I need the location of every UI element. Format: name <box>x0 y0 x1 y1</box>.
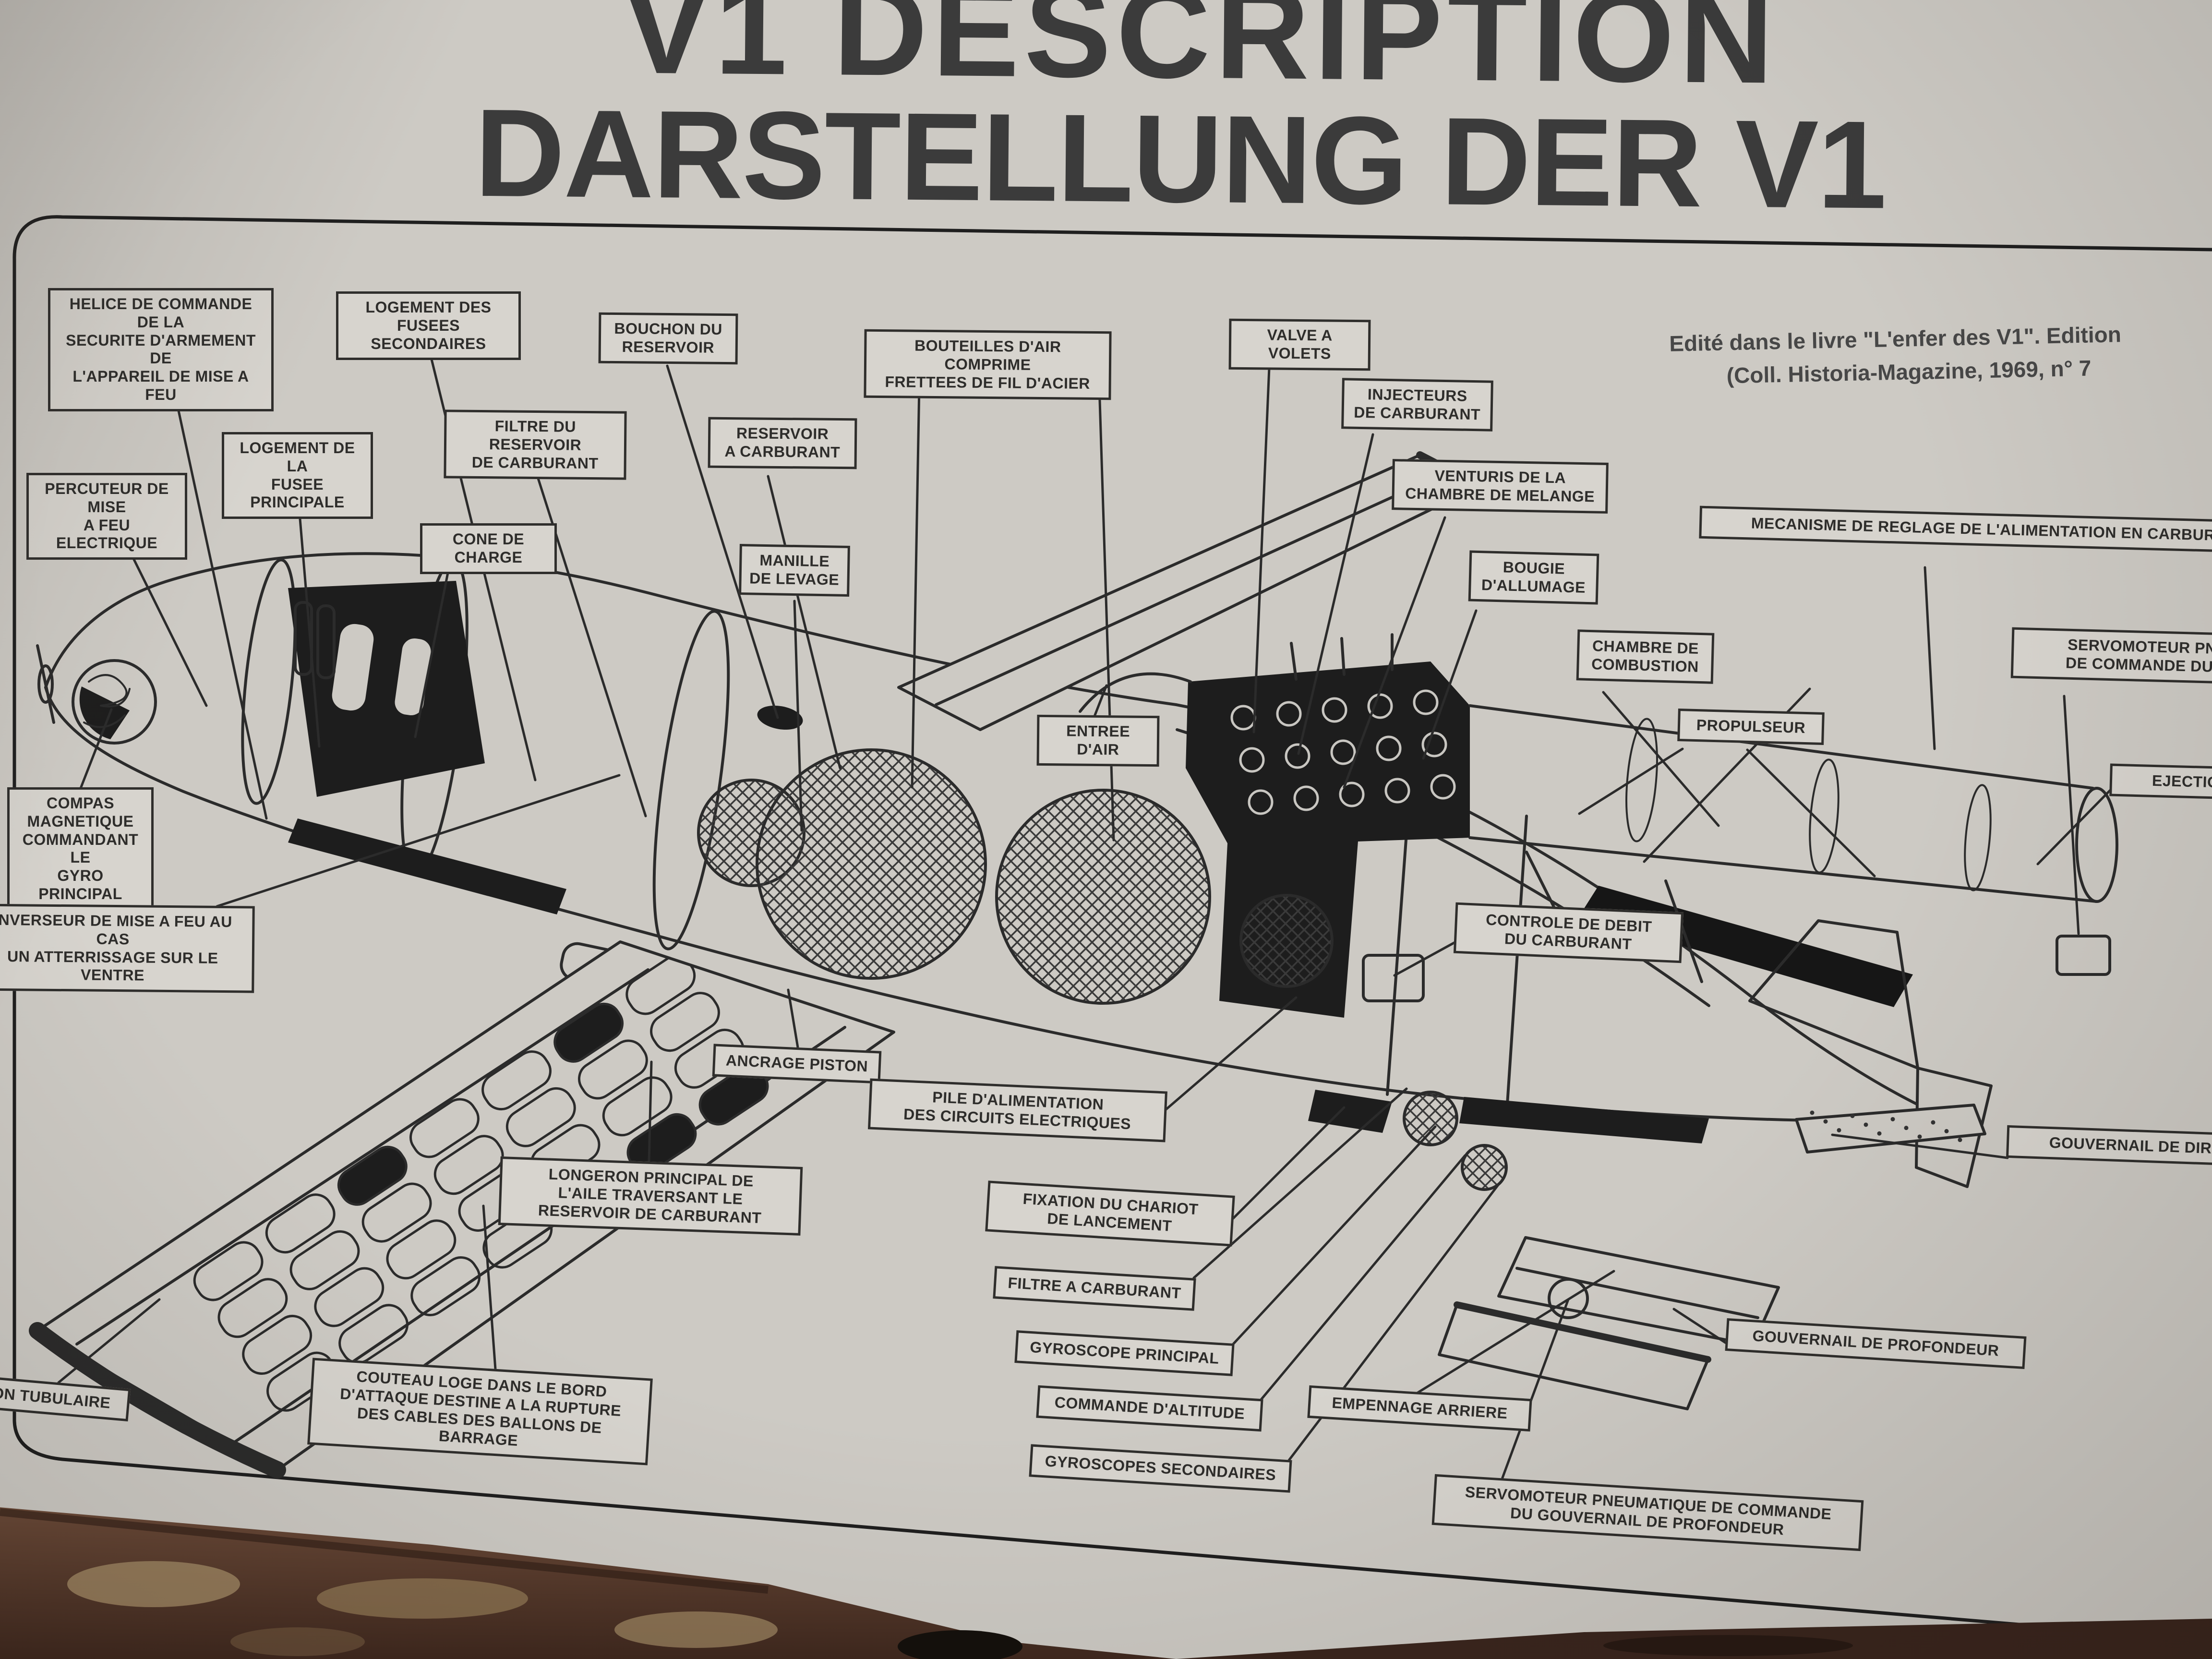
label-bouteilles-air-comprime: BOUTEILLES D'AIR COMPRIME FRETTEES DE FI… <box>864 329 1111 400</box>
label-propulseur: PROPULSEUR <box>1677 709 1825 745</box>
label-logement-fusee-principale: LOGEMENT DE LA FUSEE PRINCIPALE <box>222 432 373 519</box>
label-boxes: HELICE DE COMMANDE DE LA SECURITE D'ARME… <box>0 0 2212 1659</box>
label-mecanisme-reglage-alimentation: MECANISME DE REGLAGE DE L'ALIMENTATION E… <box>1699 506 2212 554</box>
label-helice-commande-securite: HELICE DE COMMANDE DE LA SECURITE D'ARME… <box>48 288 274 411</box>
label-controle-debit-carburant: CONTROLE DE DEBIT DU CARBURANT <box>1454 902 1683 963</box>
label-longeron-principal-aile: LONGERON PRINCIPAL DE L'AILE TRAVERSANT … <box>498 1156 803 1236</box>
label-percuteur-mise-a-feu: PERCUTEUR DE MISE A FEU ELECTRIQUE <box>26 473 187 560</box>
label-inverseur-mise-a-feu: INVERSEUR DE MISE A FEU AU CAS UN ATTERR… <box>0 903 255 993</box>
label-cone-de-charge: CONE DE CHARGE <box>420 523 557 574</box>
label-longeron-tubulaire: RON TUBULAIRE <box>0 1374 131 1421</box>
label-pile-alimentation: PILE D'ALIMENTATION DES CIRCUITS ELECTRI… <box>868 1079 1167 1142</box>
label-gyroscopes-secondaires: GYROSCOPES SECONDAIRES <box>1029 1444 1292 1492</box>
label-ancrage-piston: ANCRAGE PISTON <box>712 1044 882 1083</box>
label-manille-de-levage: MANILLE DE LEVAGE <box>739 544 850 596</box>
label-injecteurs-de-carburant: INJECTEURS DE CARBURANT <box>1341 378 1493 431</box>
label-bougie-allumage: BOUGIE D'ALLUMAGE <box>1468 550 1599 604</box>
label-filtre-du-reservoir: FILTRE DU RESERVOIR DE CARBURANT <box>444 409 626 480</box>
label-valve-a-volets: VALVE A VOLETS <box>1229 319 1371 371</box>
label-bouchon-reservoir: BOUCHON DU RESERVOIR <box>599 313 738 364</box>
label-gouvernail-de-profondeur: GOUVERNAIL DE PROFONDEUR <box>1725 1318 2027 1369</box>
label-venturis-chambre-melange: VENTURIS DE LA CHAMBRE DE MELANGE <box>1392 459 1609 513</box>
label-reservoir-a-carburant: RESERVOIR A CARBURANT <box>708 417 857 469</box>
label-compas-magnetique: COMPAS MAGNETIQUE COMMANDANT LE GYRO PRI… <box>7 787 154 911</box>
label-gyroscope-principal: GYROSCOPE PRINCIPAL <box>1014 1330 1234 1376</box>
label-servomoteur-gouvernail-profondeur: SERVOMOTEUR PNEUMATIQUE DE COMMANDE DU G… <box>1432 1474 1864 1551</box>
label-filtre-a-carburant: FILTRE A CARBURANT <box>993 1266 1196 1310</box>
label-empennage-arriere: EMPENNAGE ARRIERE <box>1307 1385 1532 1431</box>
label-couteau-bord-attaque: COUTEAU LOGE DANS LE BORD D'ATTAQUE DEST… <box>307 1358 653 1465</box>
label-logement-fusees-secondaires: LOGEMENT DES FUSEES SECONDAIRES <box>336 291 521 360</box>
label-fixation-chariot-lancement: FIXATION DU CHARIOT DE LANCEMENT <box>985 1180 1235 1246</box>
label-commande-altitude: COMMANDE D'ALTITUDE <box>1036 1385 1263 1431</box>
photo-of-v1-information-panel: { "title": { "line1": "V1 DESCRIPTION", … <box>0 0 2212 1659</box>
label-ejection: EJECTION <box>2109 764 2212 801</box>
label-servomoteur-gouvernail-direction: SERVOMOTEUR PNEUMA DE COMMANDE DU GOUV <box>2011 627 2212 686</box>
label-gouvernail-de-direction: GOUVERNAIL DE DIRECTION <box>2006 1125 2212 1168</box>
label-chambre-de-combustion: CHAMBRE DE COMBUSTION <box>1576 629 1715 684</box>
label-entree-d-air: ENTREE D'AIR <box>1037 715 1160 767</box>
